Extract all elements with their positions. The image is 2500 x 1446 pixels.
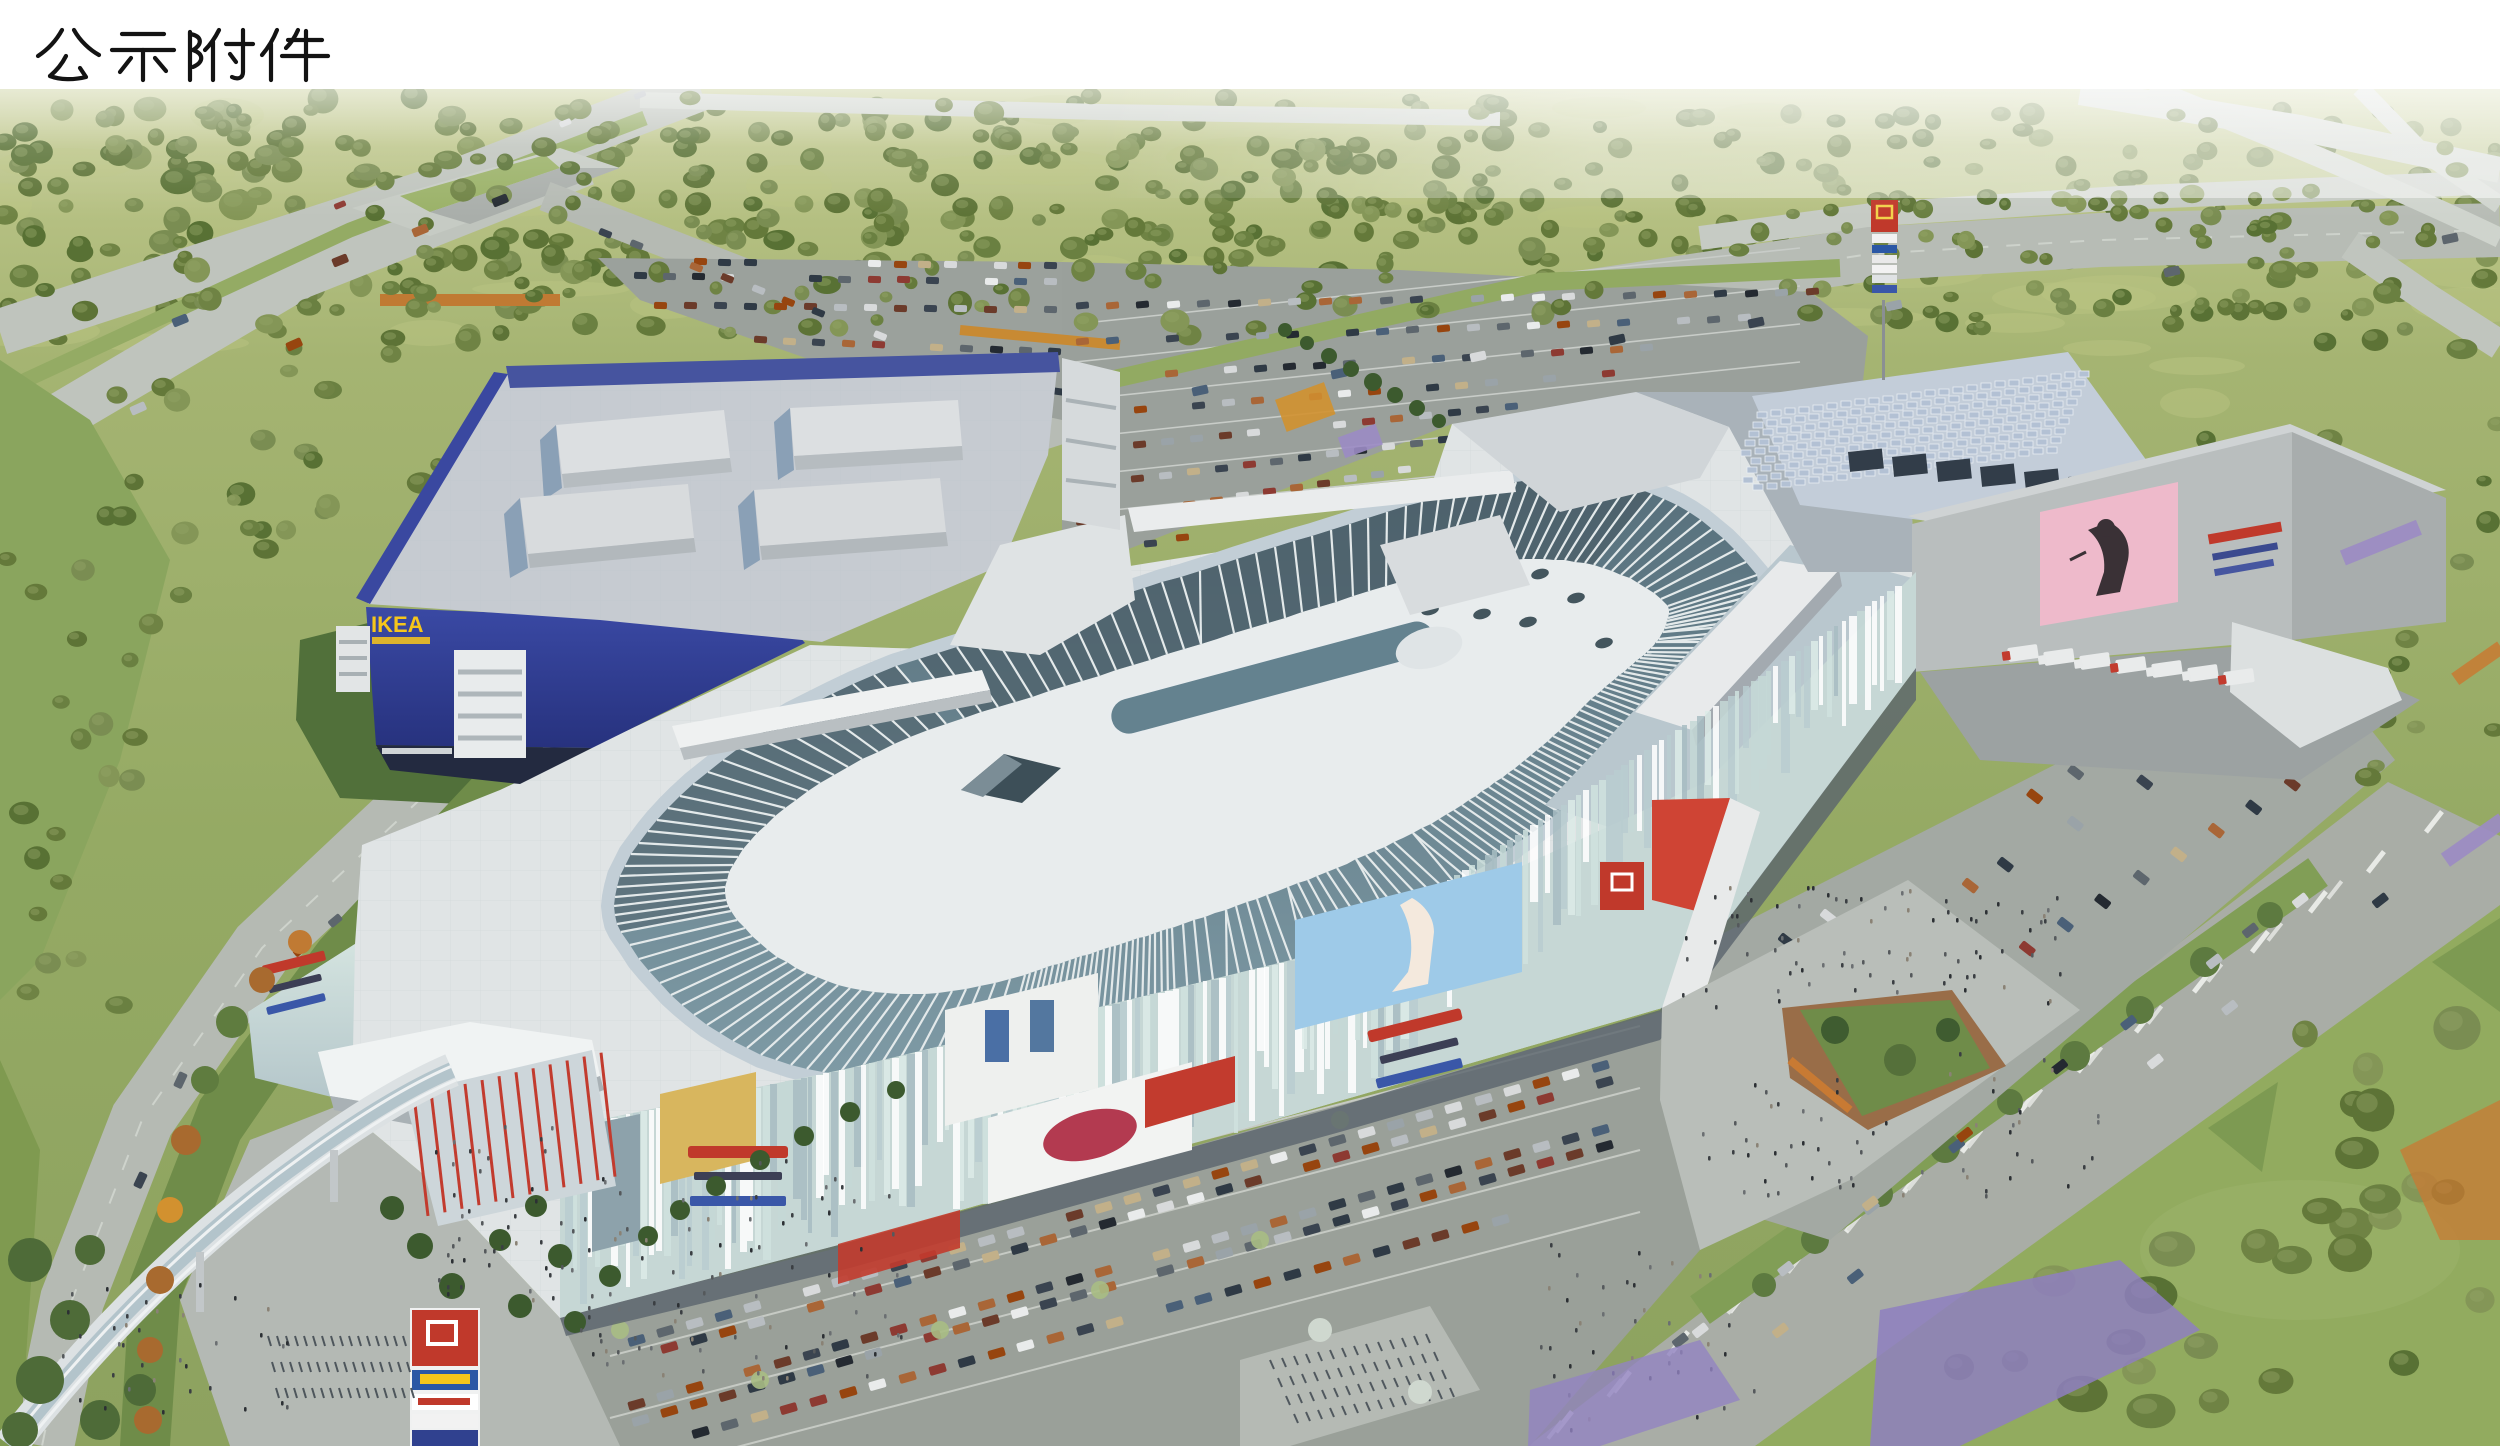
svg-text:IKEA: IKEA bbox=[371, 612, 424, 637]
